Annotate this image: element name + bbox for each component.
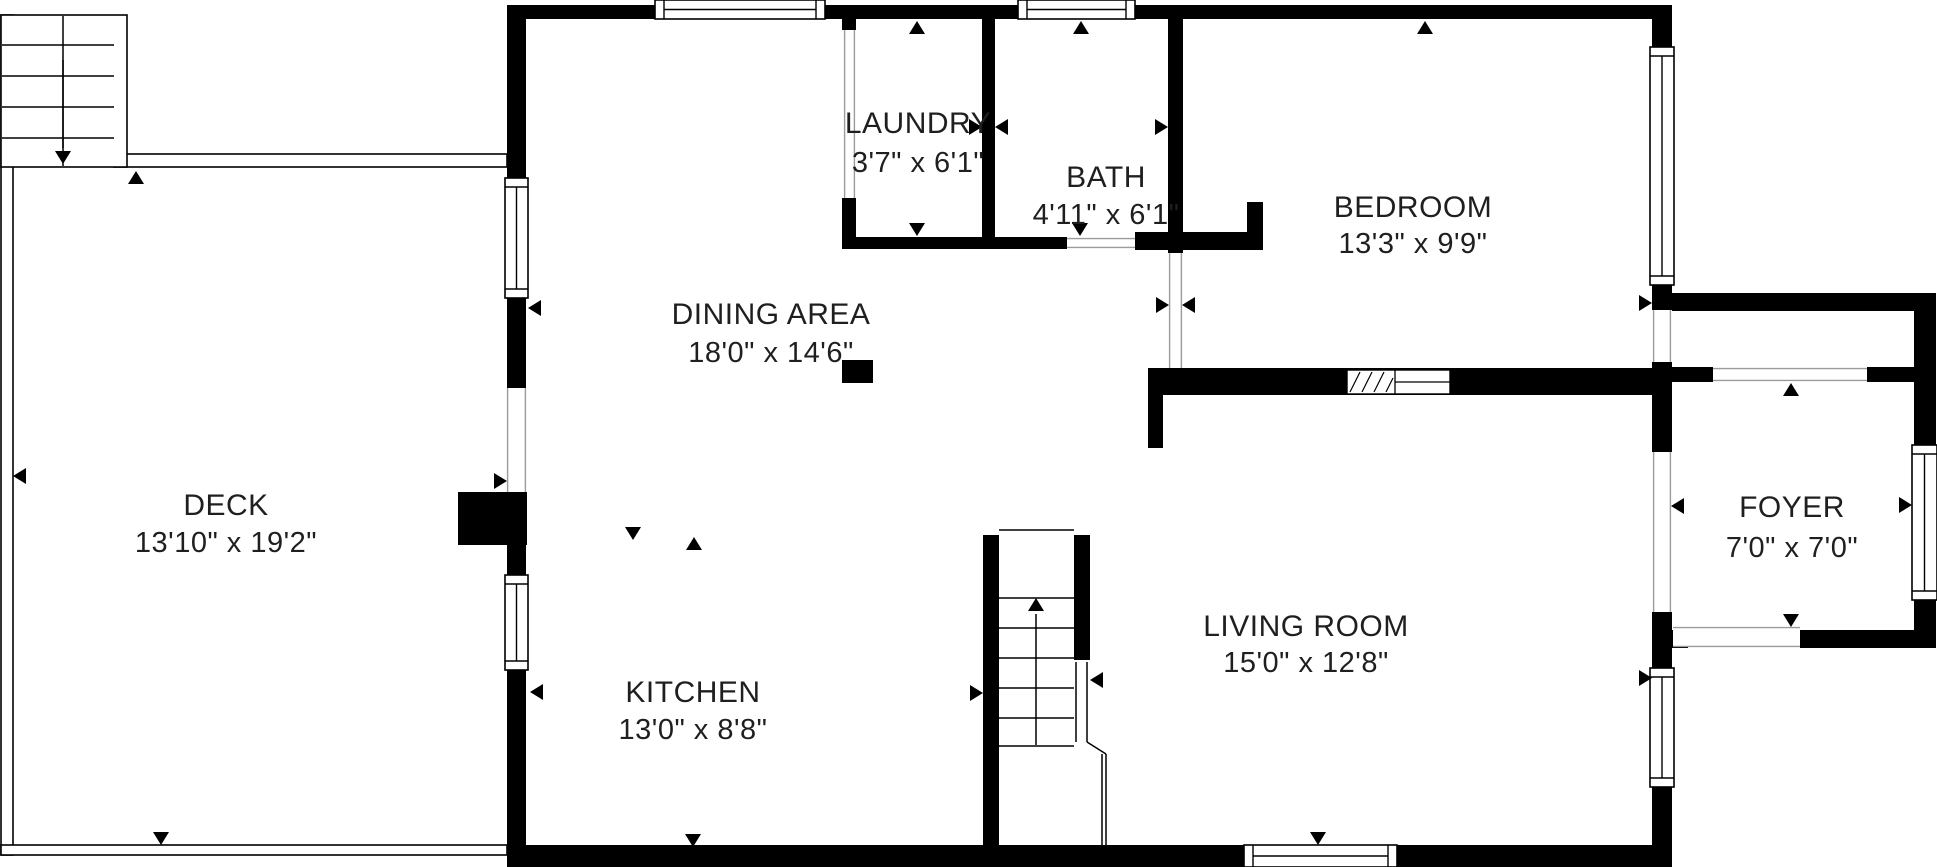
door-opening	[1067, 238, 1135, 248]
wall	[507, 670, 526, 845]
wall	[1135, 232, 1263, 250]
room-label: FOYER	[1739, 491, 1845, 524]
wall	[1652, 5, 1672, 47]
door-opening	[1713, 368, 1867, 381]
wall	[1867, 367, 1914, 382]
room-dimensions: 15'0" x 12'8"	[1223, 647, 1389, 679]
wall	[983, 535, 999, 845]
room-dimensions: 13'3" x 9'9"	[1339, 228, 1488, 260]
room-label: LIVING ROOM	[1203, 610, 1409, 643]
door-opening	[507, 388, 526, 492]
wall	[842, 19, 856, 30]
room-dimensions: 3'7" x 6'1"	[852, 147, 984, 179]
floorplan-svg: LAUNDRY3'7" x 6'1"BATH4'11" x 6'1"BEDROO…	[0, 0, 1937, 867]
room-label: BATH	[1066, 161, 1146, 194]
room-dimensions: 13'10" x 19'2"	[135, 527, 317, 559]
railing-outline	[1, 15, 127, 167]
wall	[1914, 311, 1936, 445]
room-dimensions: 4'11" x 6'1"	[1033, 199, 1180, 231]
wall	[1652, 285, 1672, 310]
door-opening	[1673, 627, 1800, 647]
door-opening	[1169, 253, 1182, 368]
room-label: LAUNDRY	[845, 107, 991, 140]
railing-outline	[1, 845, 507, 855]
wall	[1652, 787, 1672, 845]
wall	[507, 492, 526, 575]
door-opening	[1653, 452, 1671, 612]
room-dimensions: 18'0" x 14'6"	[688, 337, 854, 369]
wall	[1148, 395, 1163, 448]
wall	[1800, 630, 1936, 648]
floorplan: LAUNDRY3'7" x 6'1"BATH4'11" x 6'1"BEDROO…	[0, 0, 1937, 867]
wall	[507, 298, 526, 388]
wall	[1247, 202, 1263, 232]
room-dimensions: 7'0" x 7'0"	[1726, 532, 1858, 564]
room-label: KITCHEN	[625, 676, 760, 709]
wall	[842, 237, 1067, 249]
room-dimensions: 13'0" x 8'8"	[619, 714, 768, 746]
wall	[1074, 535, 1090, 660]
wall	[507, 19, 526, 178]
wall	[1672, 293, 1936, 311]
room-label: DECK	[183, 489, 268, 522]
door-opening	[1653, 310, 1671, 362]
room-label: BEDROOM	[1334, 191, 1493, 224]
room-label: DINING AREA	[672, 298, 871, 331]
wall	[1672, 367, 1713, 382]
railing-outline	[114, 154, 507, 167]
wall	[507, 845, 1672, 867]
